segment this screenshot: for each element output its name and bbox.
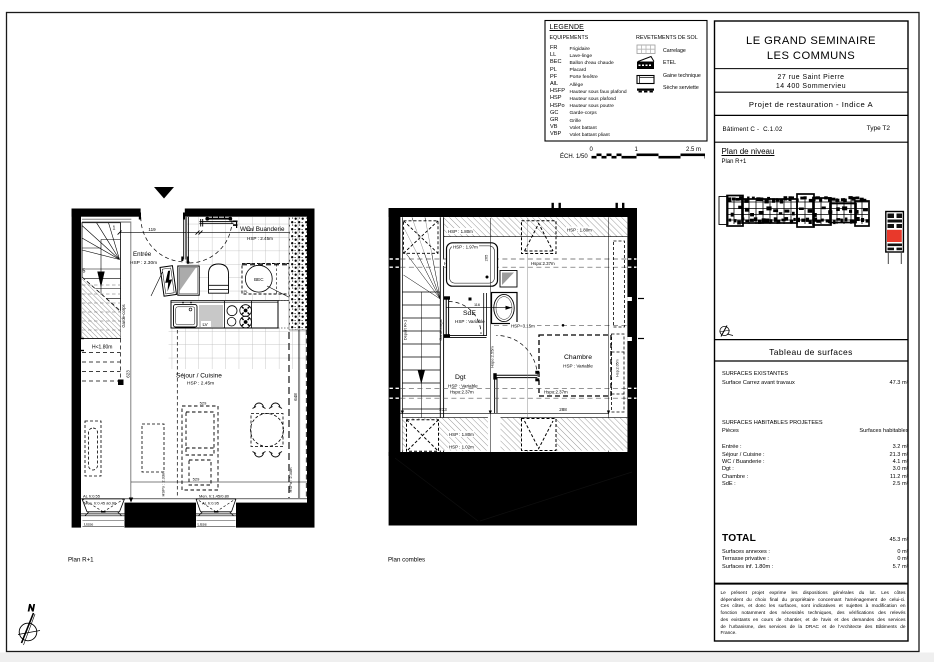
svg-text:288: 288 — [559, 407, 567, 412]
svg-text:Lisse: Lisse — [84, 522, 94, 527]
svg-text:N: N — [28, 603, 35, 613]
svg-text:HSPo : 2.30m: HSPo : 2.30m — [288, 467, 293, 493]
svg-text:HSP=3.15m: HSP=3.15m — [511, 323, 535, 328]
svg-text:HSP : Variable: HSP : Variable — [448, 384, 478, 389]
svg-text:Men. h:0.45 à0.90: Men. h:0.45 à0.90 — [84, 501, 117, 506]
svg-text:Plan R+1: Plan R+1 — [68, 557, 94, 564]
svg-text:BEC: BEC — [254, 277, 264, 282]
svg-text:AL h:0.95: AL h:0.95 — [202, 501, 220, 506]
svg-text:WC / Buanderie: WC / Buanderie — [240, 226, 285, 233]
svg-text:AL h:0.55: AL h:0.55 — [83, 493, 101, 498]
svg-text:Hspo:2.37m: Hspo:2.37m — [531, 261, 555, 266]
svg-text:2.5 m: 2.5 m — [686, 147, 701, 153]
svg-text:529: 529 — [193, 477, 200, 482]
svg-text:Plan combles: Plan combles — [388, 557, 425, 564]
svg-text:H<1.80m: H<1.80m — [92, 345, 112, 351]
svg-text:Dgt: Dgt — [455, 374, 466, 381]
svg-text:ÉCH. 1/50: ÉCH. 1/50 — [560, 153, 588, 160]
svg-text:213: 213 — [439, 407, 447, 412]
svg-text:HSP : 1.97m: HSP : 1.97m — [453, 245, 478, 250]
svg-text:HSP : Variable: HSP : Variable — [455, 319, 485, 324]
svg-text:Lisse: Lisse — [198, 522, 208, 527]
svg-text:Séjour / Cuisine: Séjour / Cuisine — [176, 373, 222, 380]
svg-text:5: 5 — [83, 269, 86, 275]
svg-text:SdE: SdE — [463, 310, 476, 317]
svg-text:Hspo:2.37m: Hspo:2.37m — [544, 390, 568, 395]
svg-text:HSP : 1.80m: HSP : 1.80m — [449, 432, 474, 437]
svg-text:HSP : 2.45m: HSP : 2.45m — [187, 381, 214, 387]
svg-text:265: 265 — [483, 254, 488, 261]
svg-text:Chambre: Chambre — [564, 354, 592, 361]
svg-text:116: 116 — [474, 303, 480, 307]
svg-text:119: 119 — [148, 227, 156, 232]
svg-text:Hspo:2.55m: Hspo:2.55m — [490, 346, 495, 368]
svg-text:Garde-corps: Garde-corps — [439, 319, 443, 340]
svg-text:HSP : 1.80m: HSP : 1.80m — [448, 229, 473, 234]
svg-text:HSP : 1.02m: HSP : 1.02m — [449, 445, 474, 450]
svg-text:HSPo : 2.33m: HSPo : 2.33m — [161, 471, 166, 497]
svg-text:HSP : 2.30m: HSP : 2.30m — [130, 260, 157, 266]
svg-text:Garde-corps: Garde-corps — [121, 304, 126, 327]
svg-text:PL: PL — [244, 289, 250, 294]
svg-text:Départ R+1: Départ R+1 — [403, 319, 408, 340]
svg-text:HSP : 2.45m: HSP : 2.45m — [247, 236, 273, 241]
svg-text:623: 623 — [125, 370, 130, 378]
svg-text:1: 1 — [113, 226, 116, 232]
svg-text:HSP : Variable: HSP : Variable — [563, 364, 593, 369]
svg-text:Entrée: Entrée — [133, 251, 152, 258]
svg-text:LV: LV — [203, 322, 208, 327]
svg-text:Hsp:2.05m: Hsp:2.05m — [616, 359, 620, 376]
svg-text:648: 648 — [293, 393, 298, 401]
svg-text:529: 529 — [200, 401, 207, 406]
svg-text:Men. h:1.45/0.80: Men. h:1.45/0.80 — [199, 493, 230, 498]
svg-text:Hspo:2.37m: Hspo:2.37m — [450, 390, 474, 395]
svg-text:HSP : 1.80m: HSP : 1.80m — [567, 228, 592, 233]
